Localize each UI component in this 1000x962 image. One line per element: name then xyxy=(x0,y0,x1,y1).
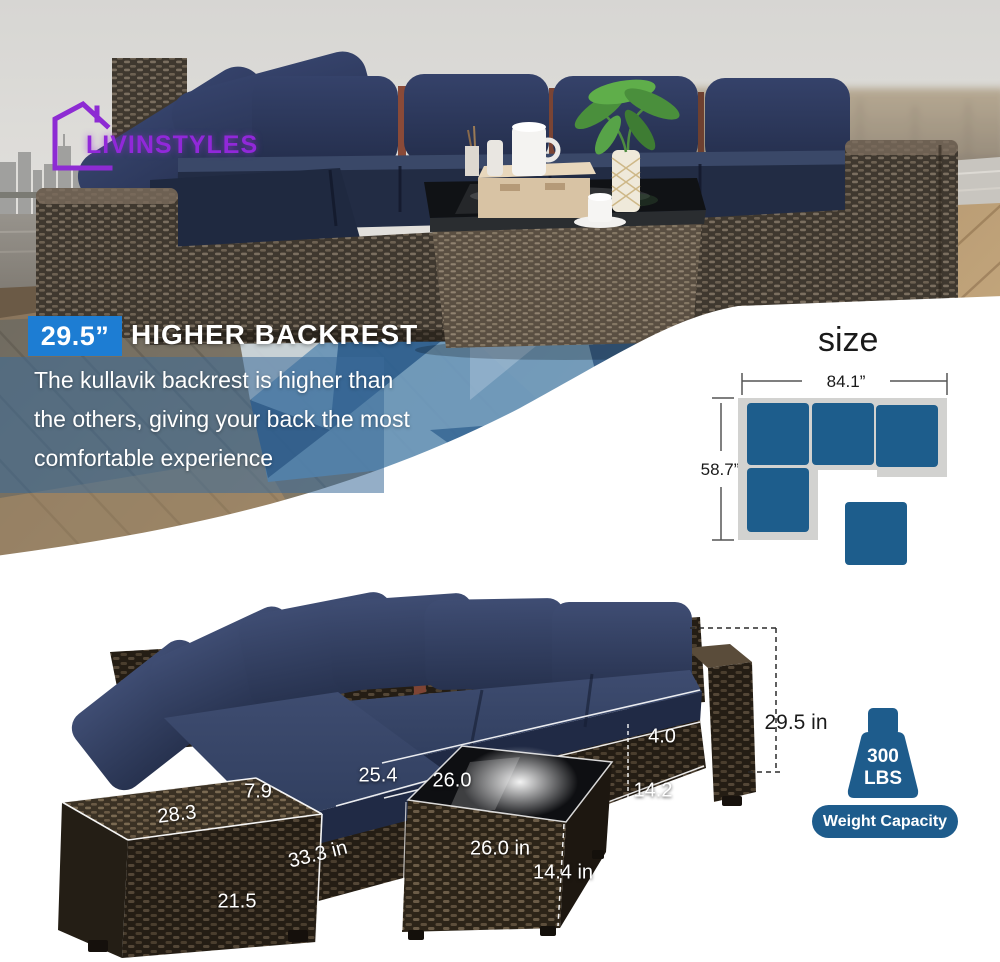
weight-capacity-label: Weight Capacity xyxy=(823,813,947,831)
dim-label-table-top-depth: 26.0 xyxy=(433,770,472,793)
size-diagram: 84.1” 58.7” xyxy=(690,325,980,575)
dim-label-backrest-height: 29.5 in xyxy=(764,711,827,735)
banner-line: comfortable experience xyxy=(34,439,410,478)
bottle xyxy=(487,140,503,176)
dim-label-seat-depth: 25.4 xyxy=(359,765,398,788)
banner-highlight: 29.5” xyxy=(41,321,110,352)
size-width-label: 84.1” xyxy=(827,372,866,391)
weight-capacity-badge: Weight Capacity xyxy=(812,805,958,838)
size-height-label: 58.7” xyxy=(701,460,740,479)
sofa-topview-cushions xyxy=(747,403,938,565)
product-image: LIVINSTYLES 29.5” HIGHER BACKREST The ku… xyxy=(0,0,1000,962)
logo-text: LIVINSTYLES xyxy=(86,131,258,160)
pencil-cup xyxy=(465,146,479,176)
banner-paragraph: The kullavik backrest is higher than the… xyxy=(34,361,410,478)
weight-unit: LBS xyxy=(864,768,902,789)
mug xyxy=(512,126,546,176)
dim-label-cushion-thickness: 4.0 xyxy=(648,726,676,749)
wood-slat xyxy=(698,92,704,162)
banner-line: The kullavik backrest is higher than xyxy=(34,361,410,400)
dim-label-table-width: 26.0 in xyxy=(470,838,530,861)
weight-icon: 300 LBS xyxy=(840,706,940,801)
table-topview xyxy=(845,502,907,565)
banner-title: HIGHER BACKREST xyxy=(131,319,418,351)
dim-label-arm-top-width: 7.9 xyxy=(244,781,272,804)
dim-label-table-height: 14.4 in xyxy=(533,862,593,885)
dim-label-arm-depth: 28.3 xyxy=(156,801,197,829)
weight-value: 300 xyxy=(867,746,899,767)
dim-label-arm-front-height: 21.5 xyxy=(218,891,257,914)
banner-line: the others, giving your back the most xyxy=(34,400,410,439)
banner-highlight-box: 29.5” xyxy=(28,316,122,356)
dim-label-base-height: 14.2 xyxy=(634,780,673,803)
tray xyxy=(478,178,590,218)
